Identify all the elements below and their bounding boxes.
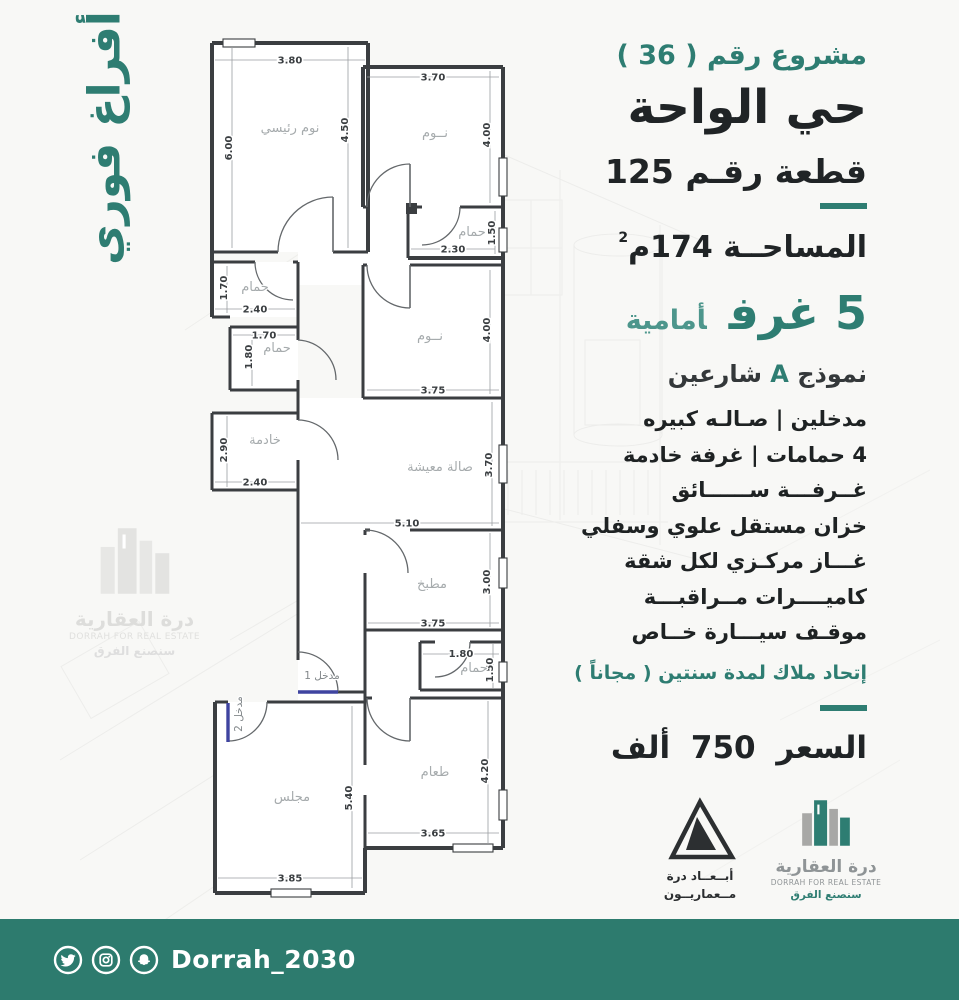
- dorrah-name-ar: درة العقارية: [768, 857, 884, 877]
- dim-majlis-bottom: 3.85: [278, 874, 303, 885]
- floorplan-drawing: 3.80 6.00 4.50 3.70 4.00 1.50 2.30 1.70 …: [185, 30, 545, 919]
- room-label-majlis: مجلس: [274, 790, 310, 805]
- dim-kitchen-right: 3.00: [482, 570, 493, 595]
- dim-maid-bottom: 2.40: [243, 478, 268, 489]
- feature-item: خزان مستقل علوي وسفلي: [581, 509, 867, 545]
- price-line: السعر 750 ألف: [611, 730, 867, 766]
- dim-bathtop-bottom: 2.30: [441, 245, 466, 256]
- room-label-bedroom2: نــوم: [422, 126, 448, 141]
- dorrah-real-estate-logo: درة العقارية DORRAH FOR REAL ESTATE سنصن…: [768, 795, 884, 901]
- social-handle: Dorrah_2030: [171, 945, 356, 974]
- dim-dining-bottom: 3.65: [421, 829, 446, 840]
- divider-top: [820, 203, 867, 209]
- project-number: مشروع رقم ( 36 ): [617, 40, 867, 71]
- room-label-bath3: حمام: [460, 661, 488, 676]
- dim-bed3-right: 4.00: [482, 318, 493, 343]
- dim-bath1-bottom: 2.40: [243, 305, 268, 316]
- dim-bed2-top: 3.70: [421, 73, 446, 84]
- model-post: شارعين: [668, 360, 762, 388]
- room-label-bath-top: حمام: [458, 225, 486, 240]
- twitter-icon[interactable]: [53, 945, 83, 975]
- rooms-side: أمامية: [626, 305, 707, 336]
- district-title: حي الواحة: [628, 80, 868, 135]
- divider-bottom: [820, 705, 867, 711]
- dorrah-name-en: DORRAH FOR REAL ESTATE: [768, 878, 884, 887]
- area-label: المساحــة 174م: [628, 230, 867, 265]
- room-label-dining: طعام: [421, 765, 450, 780]
- abaad-triangle-icon: [664, 797, 736, 861]
- dim-maid-left: 2.90: [219, 438, 230, 463]
- room-label-entry2: مدخل 2: [233, 696, 245, 732]
- dorrah-buildings-icon: [800, 795, 852, 851]
- feature-item: غـــاز مركـزي لكل شقة: [581, 544, 867, 580]
- dorrah-buildings-watermark-icon: [96, 522, 174, 600]
- dim-living-right: 3.70: [484, 453, 495, 478]
- feature-item: موقـف سيـــارة خــاص: [581, 615, 867, 651]
- instagram-icon[interactable]: [91, 945, 121, 975]
- abaad-dorrah-logo: أبــعــاد درة مــعماريــون: [652, 797, 748, 901]
- model-letter: A: [770, 360, 789, 388]
- area-line: المساحــة 174م2: [618, 230, 867, 265]
- feature-item: 4 حمامات | غرفة خادمة: [581, 438, 867, 474]
- room-label-bedroom3: نــوم: [417, 329, 443, 344]
- room-label-living: صالة معيشة: [407, 460, 473, 475]
- feature-item: كاميــــرات مــراقبـــة: [581, 580, 867, 616]
- abaad-logo-line2: مــعماريــون: [652, 887, 748, 901]
- area-superscript: 2: [618, 230, 628, 246]
- dim-bath3-top: 1.80: [449, 649, 474, 660]
- dim-dining-right: 4.20: [480, 759, 491, 784]
- side-banner-text: أفراغ فوري: [80, 11, 131, 265]
- dim-kitchen-bottom: 3.75: [421, 619, 446, 630]
- dim-mb-left: 6.00: [224, 136, 235, 161]
- model-line: نموذج A شارعين: [668, 360, 867, 388]
- room-label-master-bedroom: نوم رئيسي: [261, 121, 320, 136]
- room-label-kitchen: مطبخ: [417, 577, 447, 592]
- room-label-bath2: حمام: [263, 341, 291, 356]
- dim-bath1-left: 1.70: [219, 276, 230, 301]
- dim-bath2-top: 1.70: [252, 331, 277, 342]
- snapchat-icon[interactable]: [129, 945, 159, 975]
- plot-number: قطعة رقـم 125: [605, 152, 867, 191]
- dim-bed2-right: 4.00: [482, 123, 493, 148]
- rooms-line: 5 غرفأمامية: [626, 286, 867, 340]
- rooms-count: 5 غرف: [729, 286, 867, 340]
- room-label-bath1: حمام: [241, 280, 269, 295]
- social-icons: [53, 945, 159, 975]
- model-pre: نموذج: [797, 360, 867, 388]
- room-label-entry1: مدخل 1: [304, 670, 340, 682]
- features-list: مدخلين | صـالـه كبيره 4 حمامات | غرفة خا…: [581, 402, 867, 651]
- dim-living-width: 5.10: [395, 519, 420, 530]
- feature-item: غــرفـــة ســــــائق: [581, 473, 867, 509]
- abaad-logo-line1: أبــعــاد درة: [652, 869, 748, 883]
- dorrah-slogan: سنصنع الفرق: [768, 889, 884, 901]
- dim-majlis-mid: 5.40: [344, 786, 355, 811]
- dim-bathtop-right: 1.50: [487, 221, 498, 246]
- feature-item: مدخلين | صـالـه كبيره: [581, 402, 867, 438]
- dim-mb-right: 4.50: [340, 118, 351, 143]
- owners-union-note: إتحاد ملاك لمدة سنتين ( مجاناً ): [574, 662, 867, 684]
- dim-bed3-bottom: 3.75: [421, 386, 446, 397]
- dim-mb-top: 3.80: [278, 56, 303, 67]
- room-label-maid: خادمة: [249, 433, 281, 448]
- dim-bath2-left: 1.80: [244, 345, 255, 370]
- footer-bar: Dorrah_2030: [0, 919, 959, 1000]
